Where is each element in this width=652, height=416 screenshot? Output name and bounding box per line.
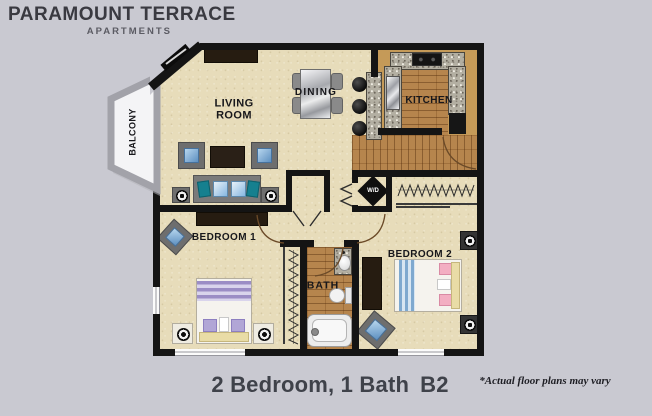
hallway-wood-floor bbox=[352, 135, 477, 170]
sofa-pillow-teal bbox=[246, 180, 260, 198]
wall bbox=[153, 205, 292, 212]
wall bbox=[153, 314, 160, 356]
bathtub-faucet bbox=[311, 328, 319, 336]
dining-chair bbox=[331, 97, 343, 114]
plan-disclaimer: *Actual floor plans may vary bbox=[455, 375, 635, 387]
kitchen-counter-right bbox=[448, 66, 466, 115]
bed-bench bbox=[451, 262, 460, 309]
brand-subtitle: APARTMENTS bbox=[8, 26, 172, 37]
bed-bench bbox=[199, 332, 249, 342]
side-table bbox=[261, 187, 279, 203]
bath-vanity bbox=[334, 248, 352, 275]
armchair bbox=[178, 142, 205, 169]
wall bbox=[300, 240, 307, 349]
living-room-label-line2: ROOM bbox=[214, 110, 253, 122]
wall bbox=[352, 206, 392, 212]
bed-pillow-purple bbox=[231, 319, 245, 332]
plan-caption-text: 2 Bedroom, 1 Bath bbox=[211, 372, 409, 397]
refrigerator bbox=[386, 76, 400, 110]
bedroom1-label: BEDROOM 1 bbox=[192, 233, 256, 244]
wall bbox=[324, 170, 330, 212]
chair-pillow bbox=[365, 319, 388, 342]
wall bbox=[280, 240, 314, 247]
sofa-pillow-blue bbox=[213, 181, 228, 197]
armchair-pillow bbox=[257, 148, 272, 163]
window bbox=[175, 349, 245, 356]
wall bbox=[352, 240, 359, 349]
wall bbox=[477, 43, 484, 356]
living-room-label-line1: LIVING bbox=[214, 98, 253, 110]
wall bbox=[352, 170, 477, 177]
bed-pillow-white bbox=[219, 317, 229, 332]
bedroom1-dresser bbox=[196, 212, 268, 226]
plan-caption: 2 Bedroom, 1 BathB2 bbox=[160, 372, 500, 398]
vanity-faucet bbox=[342, 251, 345, 254]
bar-stool bbox=[352, 99, 367, 114]
table-lamp bbox=[265, 190, 277, 202]
sofa bbox=[193, 175, 261, 203]
side-table bbox=[172, 187, 190, 203]
bar-stool bbox=[352, 77, 367, 92]
nightstand bbox=[172, 323, 193, 344]
bedroom1-bed bbox=[196, 278, 252, 344]
window bbox=[398, 349, 444, 356]
table-lamp bbox=[464, 319, 476, 331]
bedroom2-dresser bbox=[362, 257, 382, 310]
balcony-sliding-door bbox=[153, 115, 160, 163]
nightstand bbox=[253, 323, 274, 344]
vanity-sink bbox=[338, 255, 351, 271]
bedroom2-label: BEDROOM 2 bbox=[388, 250, 452, 261]
bed-pillow-white bbox=[437, 279, 451, 290]
table-lamp bbox=[176, 190, 188, 202]
sofa-pillow-blue bbox=[231, 181, 246, 197]
bathtub bbox=[307, 314, 352, 347]
dishwasher bbox=[449, 113, 466, 134]
bath-label: BATH bbox=[307, 280, 339, 291]
brand-title: PARAMOUNT TERRACE bbox=[8, 4, 236, 26]
living-room-label: LIVING ROOM bbox=[214, 98, 253, 121]
washer-dryer-label: W/D bbox=[367, 188, 379, 194]
wall bbox=[153, 84, 160, 115]
stove bbox=[412, 53, 442, 66]
table-lamp bbox=[177, 328, 190, 341]
armchair-pillow bbox=[184, 148, 199, 163]
floor-plan-page: PARAMOUNT TERRACE APARTMENTS bbox=[0, 0, 652, 416]
chair-pillow bbox=[165, 227, 185, 247]
wall bbox=[196, 43, 477, 50]
bed-blanket-stripes bbox=[399, 260, 415, 311]
sofa-pillow-teal bbox=[197, 180, 211, 198]
balcony-label: BALCONY bbox=[128, 108, 137, 155]
table-lamp bbox=[464, 235, 476, 247]
wall bbox=[153, 163, 160, 287]
table-lamp bbox=[258, 328, 271, 341]
coffee-table bbox=[210, 146, 245, 168]
bar-stool bbox=[352, 121, 367, 136]
bed-blanket-stripes bbox=[197, 281, 251, 301]
bed-pillow-purple bbox=[203, 319, 217, 332]
bedroom2-bed bbox=[394, 259, 462, 312]
window bbox=[153, 287, 160, 314]
wall bbox=[378, 128, 442, 135]
armchair bbox=[251, 142, 278, 169]
wall bbox=[371, 43, 378, 77]
toilet-tank bbox=[345, 287, 352, 304]
wall bbox=[352, 177, 358, 183]
plan-code: B2 bbox=[420, 372, 449, 397]
media-console bbox=[204, 49, 258, 63]
kitchen-label: KITCHEN bbox=[405, 96, 452, 107]
dining-label: DINING bbox=[295, 88, 337, 99]
